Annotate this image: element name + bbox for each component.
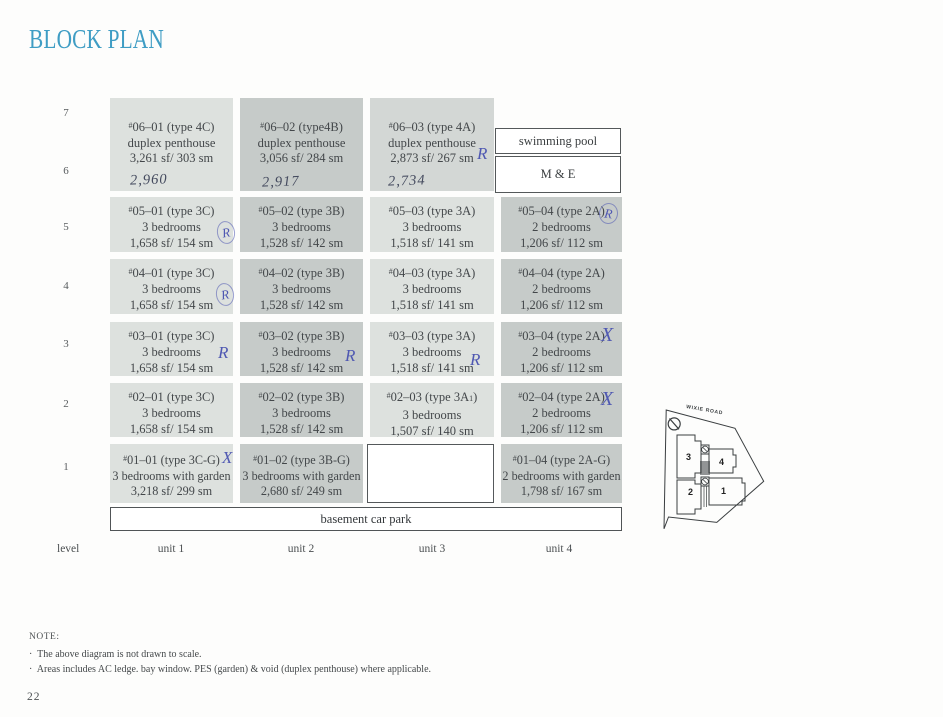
svg-text:4: 4 xyxy=(719,457,724,467)
svg-text:WIXIE ROAD: WIXIE ROAD xyxy=(686,404,724,416)
svg-text:2: 2 xyxy=(688,487,693,497)
svg-text:1: 1 xyxy=(721,486,726,496)
svg-text:3: 3 xyxy=(686,452,691,462)
